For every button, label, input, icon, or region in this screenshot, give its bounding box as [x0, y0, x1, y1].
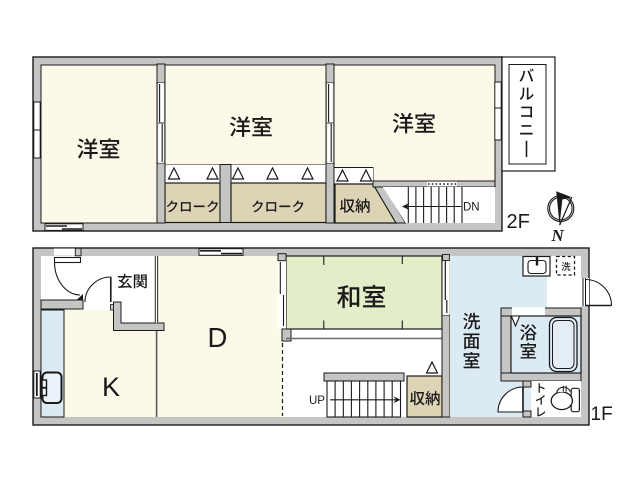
- svg-text:DN: DN: [463, 202, 480, 214]
- svg-text:UP: UP: [309, 395, 325, 407]
- svg-text:2F: 2F: [507, 211, 530, 233]
- svg-text:N: N: [551, 226, 565, 245]
- svg-text:K: K: [102, 372, 120, 402]
- svg-text:1F: 1F: [591, 404, 613, 425]
- svg-text:D: D: [208, 322, 228, 353]
